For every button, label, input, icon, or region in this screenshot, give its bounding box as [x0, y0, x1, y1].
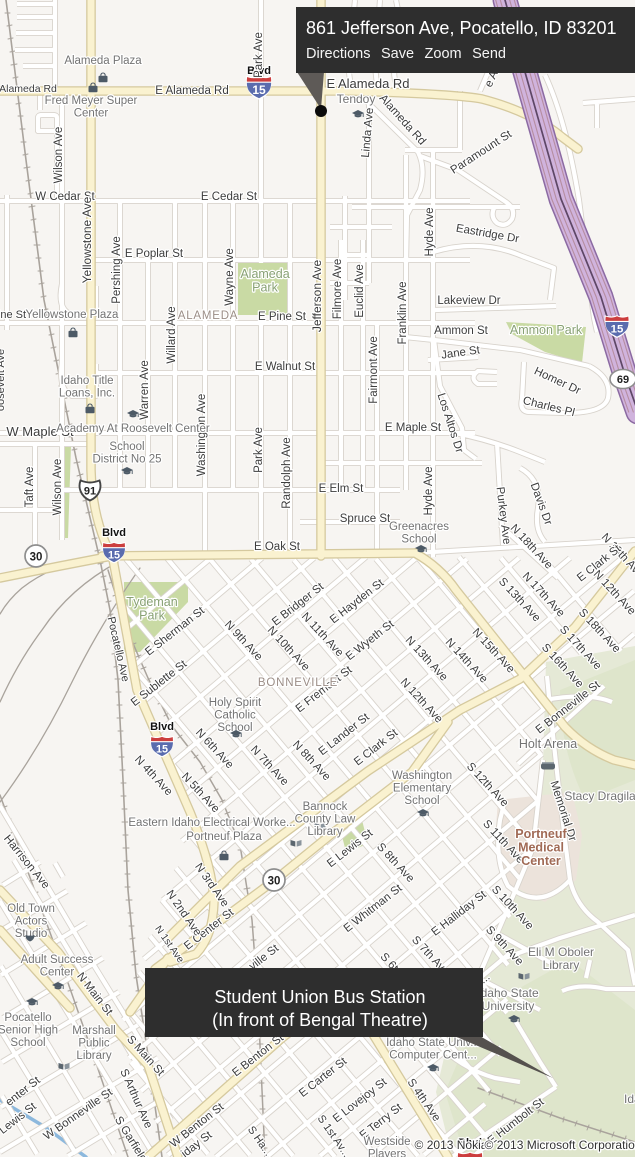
svg-text:15: 15 — [252, 83, 266, 97]
svg-text:30: 30 — [268, 875, 281, 887]
svg-text:E Poplar St: E Poplar St — [125, 248, 184, 260]
svg-text:Taft Ave: Taft Ave — [24, 467, 36, 508]
svg-text:Willard Ave: Willard Ave — [166, 306, 178, 363]
svg-text:Holt Arena: Holt Arena — [519, 737, 577, 751]
svg-text:15: 15 — [611, 324, 624, 336]
svg-text:Jefferson Ave: Jefferson Ave — [310, 260, 324, 333]
svg-text:Yellowstone Plaza: Yellowstone Plaza — [26, 309, 120, 321]
svg-text:Eastern Idaho Electrical Worke: Eastern Idaho Electrical Worke... — [128, 817, 295, 829]
svg-text:ine St: ine St — [0, 309, 26, 321]
svg-text:Lakeview Dr: Lakeview Dr — [437, 295, 500, 307]
svg-text:E Pine St: E Pine St — [258, 311, 307, 323]
svg-text:DirectionsSaveZoomSend: DirectionsSaveZoomSend — [306, 46, 506, 62]
svg-text:Alameda Rd: Alameda Rd — [0, 83, 57, 95]
svg-text:Stacy Dragila-: Stacy Dragila- — [564, 789, 635, 803]
svg-text:Washington Ave: Washington Ave — [196, 394, 208, 476]
svg-text:Fairmont Ave: Fairmont Ave — [368, 336, 380, 404]
svg-text:WestsidePlayers: WestsidePlayers — [363, 1136, 410, 1157]
svg-text:15: 15 — [108, 549, 120, 561]
svg-text:Park Ave: Park Ave — [253, 427, 265, 473]
svg-text:Blvd: Blvd — [102, 527, 126, 539]
svg-text:Ammon Park: Ammon Park — [510, 323, 583, 337]
svg-text:Portneuf Plaza: Portneuf Plaza — [186, 831, 262, 843]
svg-text:Hyde Ave: Hyde Ave — [424, 207, 436, 256]
svg-text:E Walnut St: E Walnut St — [255, 361, 316, 373]
svg-text:Wilson Ave: Wilson Ave — [52, 459, 64, 516]
svg-text:Ida...: Ida... — [624, 1092, 635, 1106]
svg-text:MarshallPublicLibrary: MarshallPublicLibrary — [72, 1025, 115, 1062]
svg-text:ALAMEDA: ALAMEDA — [178, 310, 239, 322]
svg-text:E Alameda Rd: E Alameda Rd — [155, 85, 229, 97]
svg-text:Tendoy: Tendoy — [337, 92, 376, 106]
svg-text:Student Union Bus Station: Student Union Bus Station — [214, 987, 425, 1007]
svg-text:PortneufMedicalCenter: PortneufMedicalCenter — [515, 827, 567, 868]
svg-text:E Elm St: E Elm St — [319, 483, 365, 495]
svg-text:oosevelt Ave: oosevelt Ave — [0, 349, 7, 411]
svg-text:Wilson Ave: Wilson Ave — [53, 127, 65, 184]
svg-text:Hyde Ave: Hyde Ave — [423, 466, 435, 515]
svg-text:E Maple St: E Maple St — [385, 422, 442, 434]
svg-text:Yellowstone Ave: Yellowstone Ave — [80, 196, 94, 283]
svg-text:Blvd: Blvd — [150, 721, 174, 733]
svg-text:E Cedar St: E Cedar St — [201, 191, 258, 203]
svg-text:Pershing Ave: Pershing Ave — [111, 236, 123, 304]
svg-text:Ammon St: Ammon St — [434, 325, 488, 337]
svg-text:Idaho TitleLoans, Inc.: Idaho TitleLoans, Inc. — [59, 375, 115, 400]
svg-text:Randolph Ave: Randolph Ave — [281, 437, 293, 508]
svg-text:Euclid Ave: Euclid Ave — [354, 264, 366, 318]
svg-text:BONNEVILLE: BONNEVILLE — [258, 677, 338, 689]
svg-text:(In front of Bengal Theatre): (In front of Bengal Theatre) — [212, 1010, 428, 1030]
svg-text:Academy At Roosevelt Center: Academy At Roosevelt Center — [56, 423, 210, 435]
svg-text:30: 30 — [30, 551, 43, 563]
svg-text:Idaho StateUniversity: Idaho StateUniversity — [477, 986, 539, 1013]
svg-text:Alameda Plaza: Alameda Plaza — [64, 55, 142, 67]
svg-text:861 Jefferson Ave, Pocatello,: 861 Jefferson Ave, Pocatello, ID 83201 — [306, 18, 617, 38]
svg-text:E Alameda Rd: E Alameda Rd — [326, 76, 409, 91]
svg-text:© 2013 Nokia: © 2013 Nokia — [415, 1138, 488, 1152]
svg-text:69: 69 — [617, 374, 629, 386]
svg-text:E Oak St: E Oak St — [254, 541, 301, 553]
svg-text:Warren Ave: Warren Ave — [139, 360, 151, 419]
svg-text:Filmore Ave: Filmore Ave — [332, 259, 344, 320]
svg-text:© 2013 Microsoft Corporation: © 2013 Microsoft Corporation — [485, 1138, 635, 1152]
svg-text:Wayne Ave: Wayne Ave — [224, 248, 236, 306]
svg-text:91: 91 — [84, 486, 96, 498]
svg-text:Franklin Ave: Franklin Ave — [397, 281, 409, 344]
svg-text:Park Ave: Park Ave — [253, 32, 265, 78]
svg-text:Spruce St: Spruce St — [340, 513, 391, 525]
svg-text:15: 15 — [156, 743, 168, 755]
